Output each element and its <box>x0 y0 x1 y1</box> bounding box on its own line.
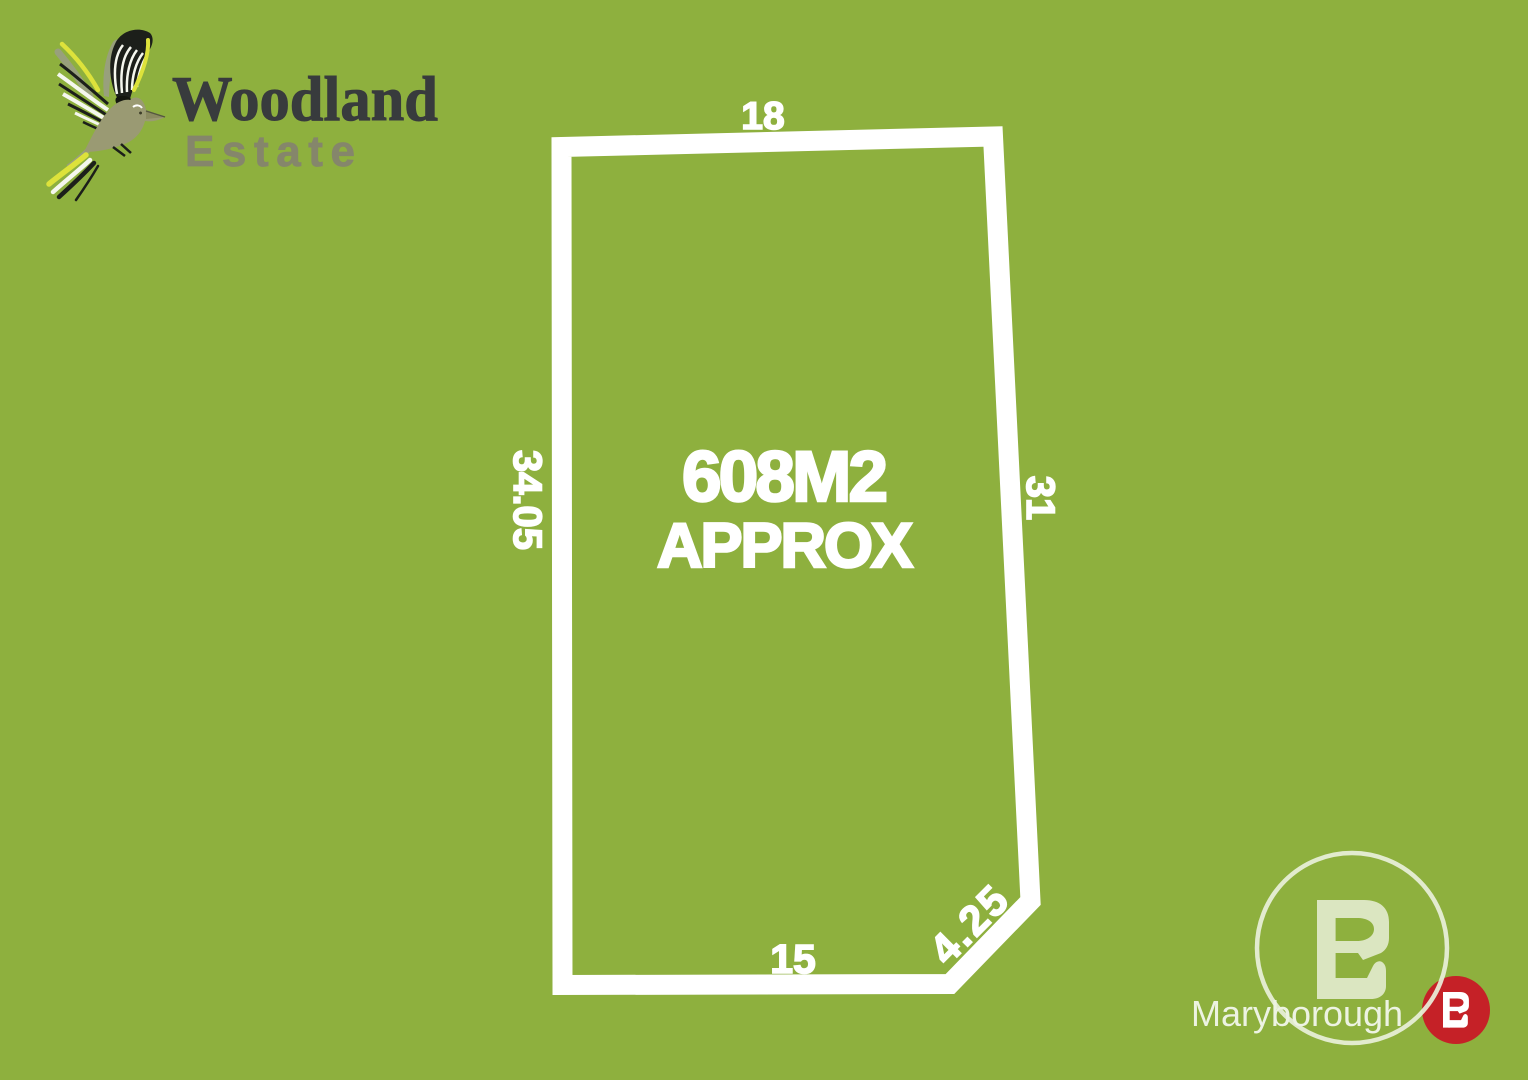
svg-text:15: 15 <box>770 936 816 982</box>
svg-text:608M2: 608M2 <box>682 438 888 517</box>
svg-text:Maryborough: Maryborough <box>1191 993 1403 1034</box>
svg-text:31: 31 <box>1018 476 1062 521</box>
svg-text:Woodland: Woodland <box>172 63 438 134</box>
svg-text:APPROX: APPROX <box>657 511 913 581</box>
svg-text:34.05: 34.05 <box>505 450 549 550</box>
svg-text:18: 18 <box>741 95 784 138</box>
